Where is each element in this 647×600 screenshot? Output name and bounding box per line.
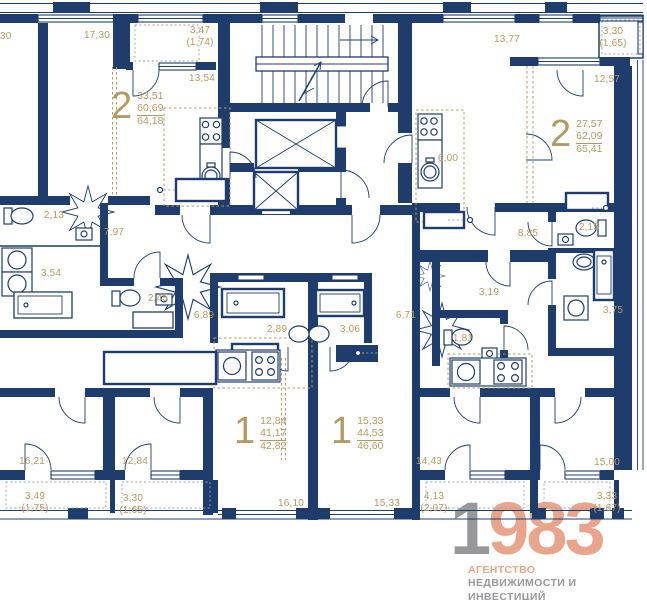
apt-living-area: 15,33	[357, 416, 383, 428]
apt-rooms-count: 1	[234, 416, 255, 446]
apt-total-area: 46,60	[357, 441, 383, 453]
apt-area: 62,09	[576, 131, 602, 144]
dim-kitchen-600: 6,00	[438, 154, 458, 164]
labels-layer: 30 17,30 3,47 (1,74) 13,54 13,77 3,30 (1…	[0, 0, 647, 600]
dim-balcony-347b: (1,74)	[186, 38, 213, 48]
dim-balcony-413b: (2,07)	[420, 504, 447, 514]
apt-stamp-1room-right: 1 15,33 44,53 46,60	[331, 416, 383, 452]
dim-room-1443: 14,43	[416, 457, 442, 467]
dim-neighbor-cut: 30	[0, 32, 12, 42]
apt-stamp-2room-right: 2 27,57 62,09 65,41	[550, 119, 602, 155]
dim-room-1284: 12,84	[122, 457, 148, 467]
apt-rooms-count: 2	[111, 91, 132, 121]
apt-living-area: 27,57	[576, 119, 602, 131]
apt-area: 41,17	[260, 428, 286, 441]
dim-bath-306: 3,06	[340, 325, 360, 335]
dim-balcony-333: 3,33	[597, 492, 617, 502]
dim-hall-797: 7,97	[104, 228, 124, 238]
dim-room-1610: 16,10	[278, 499, 304, 509]
dim-wc-213: 2,13	[44, 211, 64, 221]
dim-room-1257: 12,57	[594, 75, 620, 85]
dim-balcony-347: 3,47	[190, 26, 210, 36]
apt-total-area: 64,18	[137, 116, 163, 128]
apt-living-area: 12,84	[260, 416, 286, 428]
dim-hall-689: 6,89	[194, 311, 214, 321]
dim-wc-215: 2,15	[579, 223, 599, 233]
dim-balcony-349: 3,49	[25, 492, 45, 502]
dim-wc-245: 2,45	[148, 294, 168, 304]
dim-balcony-330tr: 3,30	[603, 27, 623, 37]
dim-balcony-330blb: (1,65)	[119, 506, 146, 516]
apt-area: 44,53	[357, 428, 383, 441]
dim-hall-319: 3,19	[479, 288, 499, 298]
dim-room-1621: 16,21	[19, 457, 45, 467]
apt-living-area: 33,51	[137, 91, 163, 103]
apt-rooms-count: 1	[331, 416, 352, 446]
floor-plan: 1983 АГЕНТСТВО НЕДВИЖИМОСТИ И ИНВЕСТИЦИЙ	[0, 0, 647, 600]
dim-room-1500: 15,00	[594, 458, 620, 468]
dim-bath-289: 2,89	[267, 325, 287, 335]
dim-room-1354: 13,54	[189, 74, 215, 84]
apt-stamp-2room-left: 2 33,51 60,69 64,18	[111, 91, 163, 127]
dim-wc-181: 1,81	[453, 334, 473, 344]
dim-balcony-413: 4,13	[424, 492, 444, 502]
apt-area: 60,69	[137, 103, 163, 116]
dim-room-1730: 17,30	[84, 31, 110, 41]
dim-room-1377: 13,77	[494, 35, 520, 45]
dim-balcony-333b: (1,67)	[593, 504, 620, 514]
apt-stamp-1room-left: 1 12,84 41,17 42,82	[234, 416, 286, 452]
apt-total-area: 65,41	[576, 144, 602, 156]
dim-room-1533: 15,33	[374, 499, 400, 509]
dim-hall-671: 6,71	[396, 311, 416, 321]
dim-balcony-330trb: (1,65)	[599, 39, 626, 49]
dim-balcony-349b: (1,75)	[21, 504, 48, 514]
dim-balcony-330bl: 3,30	[123, 494, 143, 504]
dim-hall-885: 8,85	[518, 229, 538, 239]
dim-bath-354: 3,54	[41, 269, 61, 279]
apt-rooms-count: 2	[550, 119, 571, 149]
apt-total-area: 42,82	[260, 441, 286, 453]
dim-bath-375: 3,75	[603, 306, 623, 316]
